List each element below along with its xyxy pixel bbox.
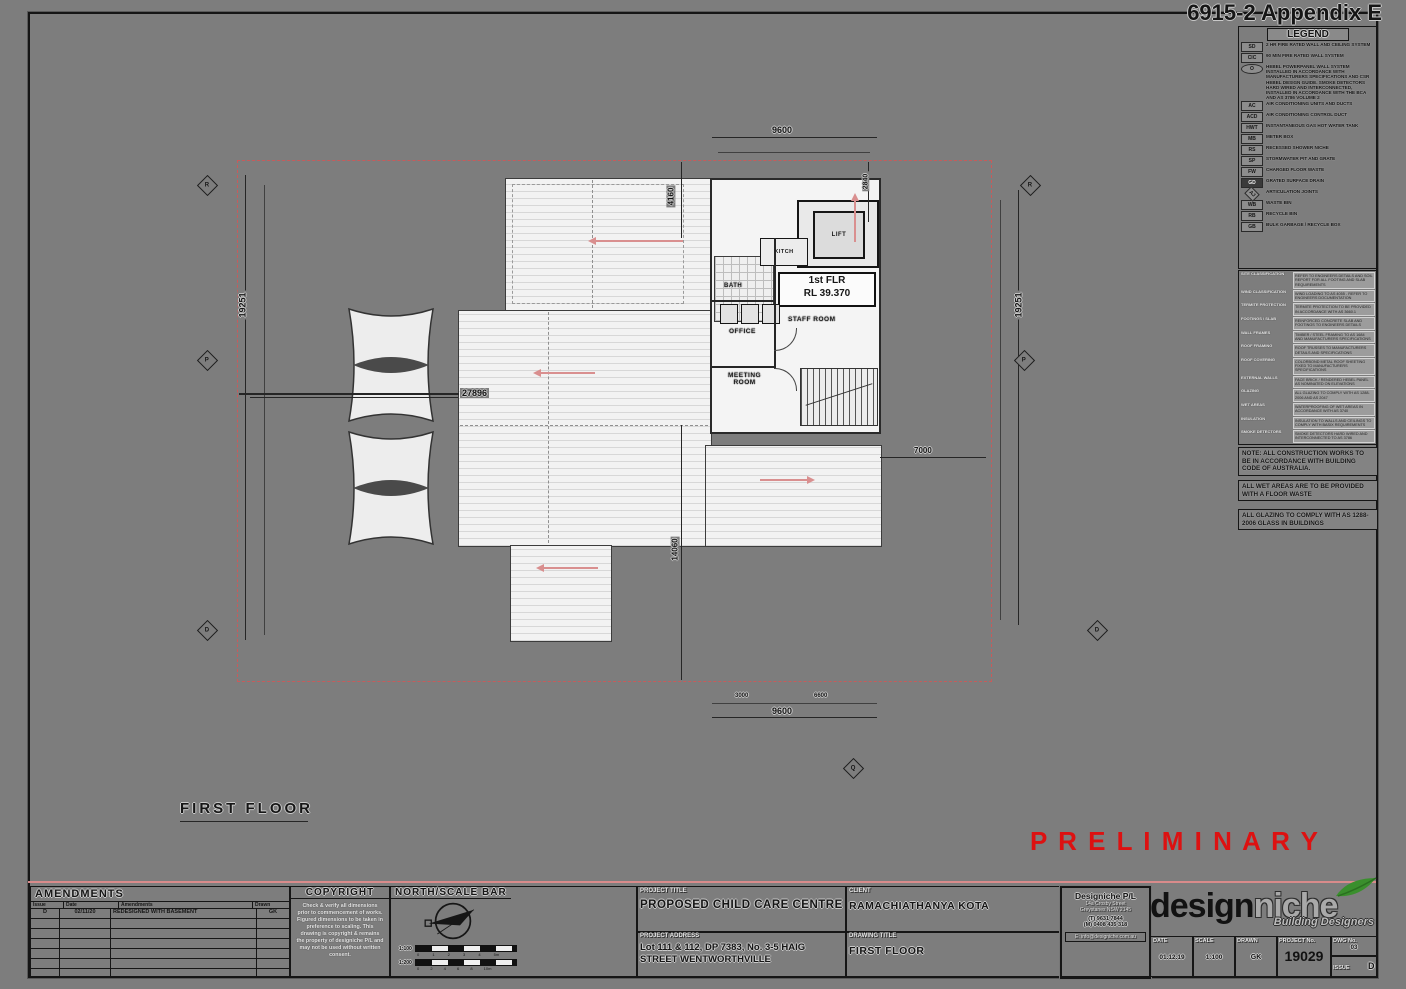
- ac-unit-icon: AC: [1241, 101, 1263, 111]
- spec-row: TERMITE PROTECTIONTERMITE PROTECTION TO …: [1241, 303, 1375, 316]
- client-box: CLIENT RAMACHIATHANYA KOTA: [845, 886, 1062, 933]
- kitchenette: KITCH: [760, 238, 808, 266]
- drawn-field: DRAWN GK: [1234, 936, 1278, 977]
- legend-item: MBMETER BOX: [1241, 134, 1375, 144]
- amendment-row: D 02/11/20 REDESIGNED WITH BASEMENT GK: [31, 909, 289, 919]
- amendments-title: AMENDMENTS: [31, 887, 289, 902]
- logo-subtitle: Building Designers: [1274, 916, 1374, 928]
- dim-line: [250, 397, 458, 398]
- room-label-staff: STAFF ROOM: [788, 316, 836, 323]
- dim-right: 19251: [1014, 290, 1024, 319]
- floor-waste-icon: FW: [1241, 167, 1263, 177]
- dim-line: [712, 717, 877, 718]
- plan-title: FIRST FLOOR: [180, 800, 313, 817]
- drawing-sheet: 6915-2 Appendix E LEGEND SD2 HR FIRE RAT…: [0, 0, 1406, 989]
- spec-row: SMOKE DETECTORSSMOKE DETECTORS HARD WIRE…: [1241, 430, 1375, 443]
- north-scalebar-box: NORTH/SCALE BAR 1:100 0 1 2 3 4 5m 1:200…: [390, 886, 638, 977]
- lift-car: LIFT: [813, 211, 865, 259]
- wall-partition: [712, 300, 774, 302]
- dim-line: [1018, 190, 1019, 625]
- dim-27896: 27896: [460, 388, 489, 398]
- amendment-row-empty: [31, 959, 289, 969]
- firewall-2hr-icon: SD: [1241, 42, 1263, 52]
- dim-subline: [264, 185, 265, 635]
- legend-item: RBRECYCLE BIN: [1241, 211, 1375, 221]
- north-title: NORTH/SCALE BAR: [391, 887, 511, 899]
- floor-dashed-line-h: [460, 425, 708, 427]
- hebel-wall-icon: O: [1241, 64, 1263, 74]
- amendments-box: AMENDMENTS Issue Date Amendments Drawn D…: [30, 886, 290, 977]
- dim-left: 19251: [238, 290, 248, 319]
- dim-6600: 6600: [812, 693, 829, 699]
- scale-bar: [415, 959, 517, 966]
- legend-box: LEGEND SD2 HR FIRE RATED WALL AND CEILIN…: [1238, 26, 1378, 269]
- legend-item: CIC90 MIN FIRE RATED WALL SYSTEM: [1241, 53, 1375, 63]
- legend-item: ACDAIR CONDITIONING CONTROL DUCT: [1241, 112, 1375, 122]
- amendment-row-empty: [31, 939, 289, 949]
- logo-design: design: [1150, 887, 1254, 925]
- amendment-row-empty: [31, 919, 289, 929]
- firm-box: Designiche P/L 14a Crosby Street Greysta…: [1060, 886, 1151, 979]
- legend-item: ACAIR CONDITIONING UNITS AND DUCTS: [1241, 101, 1375, 111]
- scale-bar-100: 1:100 0 1 2 3 4 5m: [399, 945, 517, 957]
- amendment-row-empty: [31, 969, 289, 978]
- drawing-title-value: FIRST FLOOR: [846, 940, 1061, 962]
- firewall-90min-icon: CIC: [1241, 53, 1263, 63]
- dim-14060: 14060: [671, 536, 680, 562]
- shade-sail-lower: [343, 428, 439, 548]
- legend-item: SPSTORMWATER PIT AND GRATE: [1241, 156, 1375, 166]
- north-arrow-icon: [415, 901, 491, 941]
- dim-subline: [712, 703, 877, 704]
- firm-mobile: (M) 0408 435 318: [1062, 922, 1149, 928]
- door-swing: [774, 328, 797, 351]
- spec-row: WIND CLASSIFICATIONWIND LOADING TO AS 40…: [1241, 290, 1375, 303]
- copyright-box: COPYRIGHT Check & verify all dimensions …: [290, 886, 390, 977]
- spec-row: EXTERNAL WALLSFACE BRICK / RENDERED HEBE…: [1241, 376, 1375, 389]
- date-field: DATE 01.12.19: [1150, 936, 1194, 977]
- hot-water-icon: HWT: [1241, 123, 1263, 133]
- dim-subline: [1000, 200, 1001, 620]
- fall-arrow-up: [854, 200, 856, 242]
- lift-shaft: LIFT: [797, 200, 879, 268]
- appendix-label: 6915-2 Appendix E: [1187, 0, 1382, 26]
- room-label-lift: LIFT: [832, 232, 847, 238]
- floor-area-wing: [705, 445, 882, 547]
- floor-area-bottom: [510, 545, 612, 642]
- dim-line: [681, 425, 682, 680]
- shade-sail-upper: [343, 305, 439, 425]
- desk: [762, 304, 780, 324]
- shower-niche-icon: RS: [1241, 145, 1263, 155]
- firm-name: Designiche P/L: [1062, 888, 1149, 901]
- plan-title-underline: [180, 821, 308, 822]
- garbage-box-icon: GB: [1241, 222, 1263, 232]
- project-title-box: PROJECT TITLE PROPOSED CHILD CARE CENTRE: [636, 886, 847, 933]
- note-wet-areas: ALL WET AREAS ARE TO BE PROVIDED WITH A …: [1238, 480, 1378, 501]
- spec-row: WALL FRAMESTIMBER / STEEL FRAMING TO AS …: [1241, 331, 1375, 344]
- dim-line: [245, 175, 246, 640]
- dim-subline: [718, 152, 870, 153]
- level-label-box: 1st FLR RL 39.370: [778, 272, 876, 307]
- legend-item: WBWASTE BIN: [1241, 200, 1375, 210]
- note-glazing: ALL GLAZING TO COMPLY WITH AS 1288-2006 …: [1238, 509, 1378, 530]
- spec-row: ROOF FRAMINGROOF TRUSSES TO MANUFACTURER…: [1241, 344, 1375, 357]
- drawing-title-box: DRAWING TITLE FIRST FLOOR: [845, 931, 1062, 977]
- drawing-title-label: DRAWING TITLE: [846, 932, 1061, 940]
- issue-field: ISSUE D: [1330, 955, 1378, 977]
- scale-bar: [415, 945, 517, 952]
- legend-item: RSRECESSED SHOWER NICHE: [1241, 145, 1375, 155]
- room-label-kitch: KITCH: [774, 249, 793, 255]
- project-title-value: PROPOSED CHILD CARE CENTRE: [637, 895, 846, 915]
- spec-row: FOOTINGS / SLABREINFORCED CONCRETE SLAB …: [1241, 317, 1375, 330]
- fall-arrow-right: [760, 479, 808, 481]
- dim-line: [681, 162, 682, 238]
- scale-field: SCALE 1:100: [1192, 936, 1236, 977]
- specifications-box: SITE CLASSIFICATIONREFER TO ENGINEERS DE…: [1238, 270, 1378, 445]
- legend-item: GBBULK GARBAGE / RECYCLE BOX: [1241, 222, 1375, 232]
- amendment-row-empty: [31, 949, 289, 959]
- spec-row: GLAZINGALL GLAZING TO COMPLY WITH AS 128…: [1241, 389, 1375, 402]
- desk: [741, 304, 759, 324]
- door-swing: [774, 368, 797, 391]
- legend-item: SD2 HR FIRE RATED WALL AND CEILING SYSTE…: [1241, 42, 1375, 52]
- awning-line: [239, 393, 459, 395]
- dim-top: 9600: [770, 125, 794, 135]
- scale-bar-200: 1:200 0 2 4 6 8 10m: [399, 959, 517, 971]
- fall-arrow-left: [595, 240, 683, 242]
- dim-3000: 3000: [733, 693, 750, 699]
- floor-area-left: [458, 310, 712, 547]
- fall-arrow-left: [543, 567, 598, 569]
- desk: [720, 304, 738, 324]
- copyright-title: COPYRIGHT: [291, 887, 389, 899]
- spec-row: SITE CLASSIFICATIONREFER TO ENGINEERS DE…: [1241, 272, 1375, 289]
- legend-item: HWTINSTANTANEOUS GAS HOT WATER TANK: [1241, 123, 1375, 133]
- spec-row: WET AREASWATERPROOFING OF WET AREAS IN A…: [1241, 403, 1375, 416]
- fall-arrow-left: [540, 372, 595, 374]
- copyright-text: Check & verify all dimensions prior to c…: [291, 899, 389, 963]
- legend-item: OHEBEL POWERPANEL WALL SYSTEM INSTALLED …: [1241, 64, 1375, 100]
- floor-dashed-line-v: [548, 312, 550, 543]
- project-no-field: PROJECT No. 19029: [1276, 936, 1332, 977]
- legend-item: FWCHARGED FLOOR WASTE: [1241, 167, 1375, 177]
- legend-item: GDGRATED SURFACE DRAIN: [1241, 178, 1375, 188]
- amendments-header-row: Issue Date Amendments Drawn: [31, 902, 289, 909]
- firm-phone: (T) 9631 7844: [1062, 913, 1149, 922]
- spec-row: ROOF COVERINGCOLORBOND METAL ROOF SHEETI…: [1241, 358, 1375, 375]
- preliminary-stamp: P R E L I M I N A R Y: [1030, 826, 1320, 857]
- room-label-bath: BATH: [724, 283, 742, 289]
- client-value: RAMACHIATHANYA KOTA: [846, 895, 1061, 917]
- level-rl: RL 39.370: [780, 288, 874, 300]
- dwg-no-field: DWG No. 03: [1330, 936, 1378, 957]
- spec-row: INSULATIONINSULATION TO WALLS AND CEILIN…: [1241, 417, 1375, 430]
- dim-bottom: 9600: [770, 706, 794, 716]
- amendment-row-empty: [31, 929, 289, 939]
- room-label-meeting: MEETING ROOM: [728, 372, 761, 386]
- legend-item: AJARTICULATION JOINTS: [1241, 189, 1375, 199]
- legend-title: LEGEND: [1267, 28, 1349, 41]
- dim-2840: 2840: [862, 172, 869, 192]
- recycle-bin-icon: RB: [1241, 211, 1263, 221]
- dim-7000: 7000: [912, 446, 934, 455]
- dim-4160: 4160: [666, 186, 675, 208]
- stair: [800, 368, 878, 426]
- project-address-value: Lot 111 & 112, DP 7383, No. 3-5 HAIG STR…: [637, 940, 846, 968]
- level-name: 1st FLR: [780, 274, 874, 288]
- project-address-box: PROJECT ADDRESS Lot 111 & 112, DP 7383, …: [636, 931, 847, 977]
- titleblock-top-line: [28, 881, 1376, 883]
- client-label: CLIENT: [846, 887, 1061, 895]
- project-title-label: PROJECT TITLE: [637, 887, 846, 895]
- firm-email: E: info@designiche.com.au: [1065, 932, 1146, 942]
- room-label-office: OFFICE: [729, 328, 756, 335]
- roof-dashed-outline: [512, 184, 684, 304]
- dim-line: [880, 457, 986, 458]
- meter-box-icon: MB: [1241, 134, 1263, 144]
- leaf-icon: [1308, 876, 1378, 902]
- stormwater-pit-icon: SP: [1241, 156, 1263, 166]
- wall-partition: [712, 366, 776, 368]
- ac-duct-icon: ACD: [1241, 112, 1263, 122]
- project-address-label: PROJECT ADDRESS: [637, 932, 846, 940]
- note-bca: NOTE: ALL CONSTRUCTION WORKS TO BE IN AC…: [1238, 447, 1378, 476]
- logo-area: designniche Building Designers: [1150, 884, 1376, 936]
- office-desks: [720, 304, 780, 324]
- dim-line: [712, 137, 877, 138]
